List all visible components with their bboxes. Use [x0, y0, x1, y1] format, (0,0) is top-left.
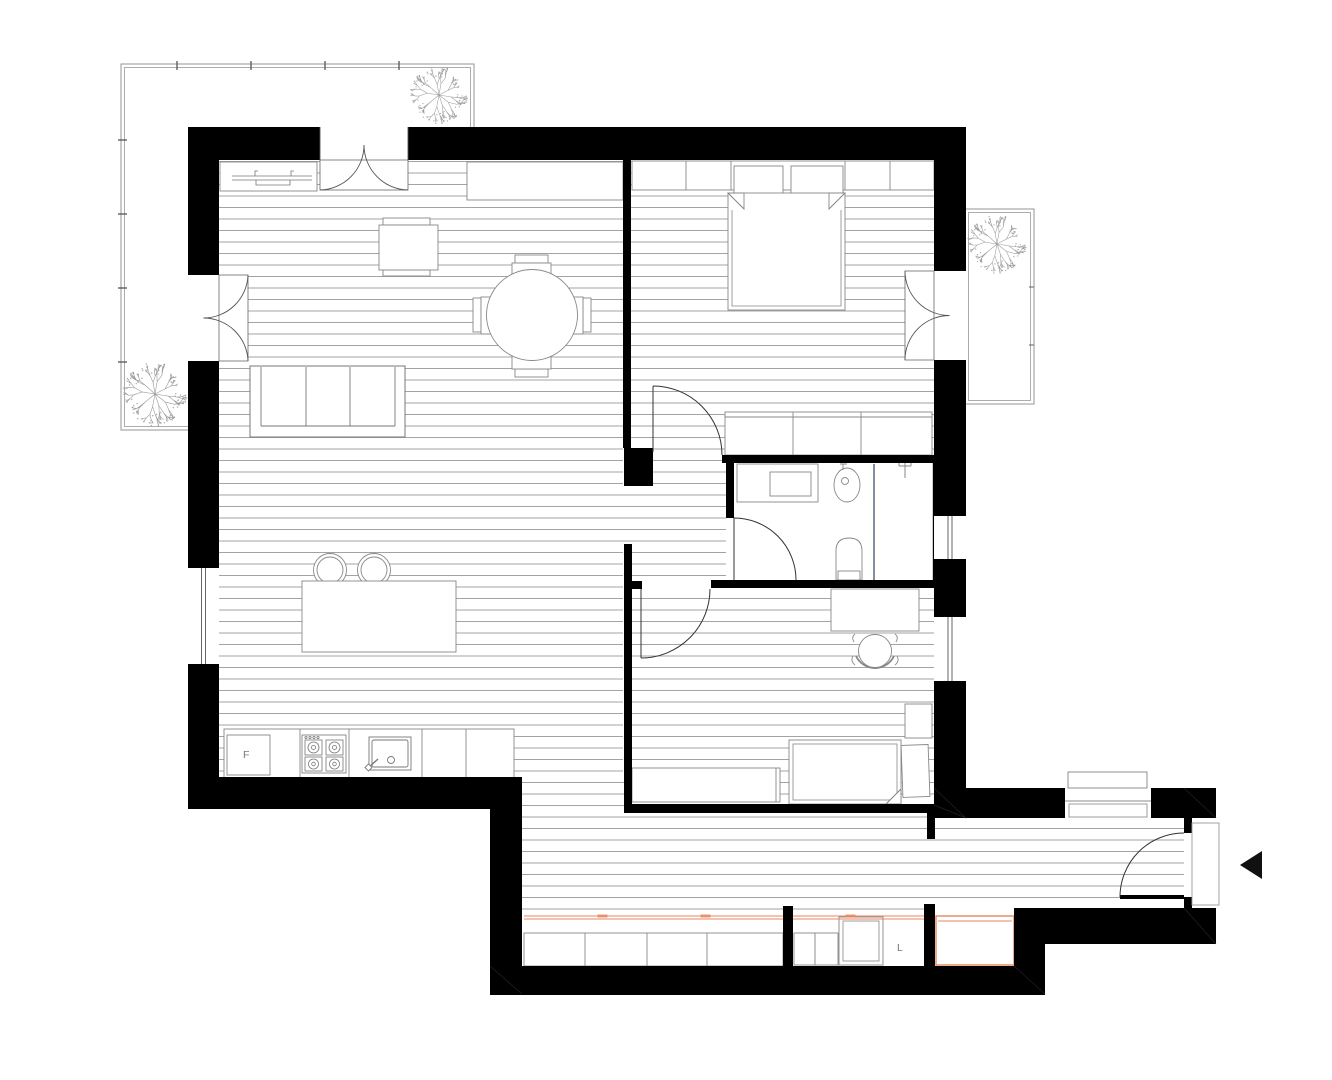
svg-text:F: F — [243, 749, 249, 761]
svg-text:L: L — [897, 942, 903, 954]
